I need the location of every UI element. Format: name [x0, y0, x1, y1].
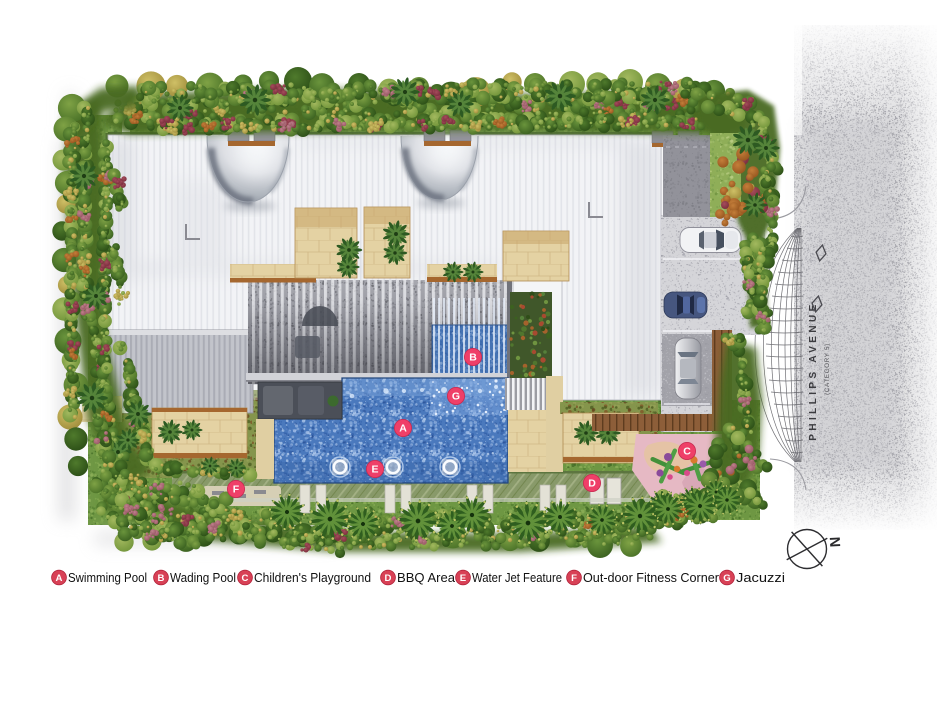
svg-text:(CATEGORY 5): (CATEGORY 5) [824, 343, 831, 395]
svg-text:PHILLIPS AVENUE: PHILLIPS AVENUE [808, 301, 819, 440]
